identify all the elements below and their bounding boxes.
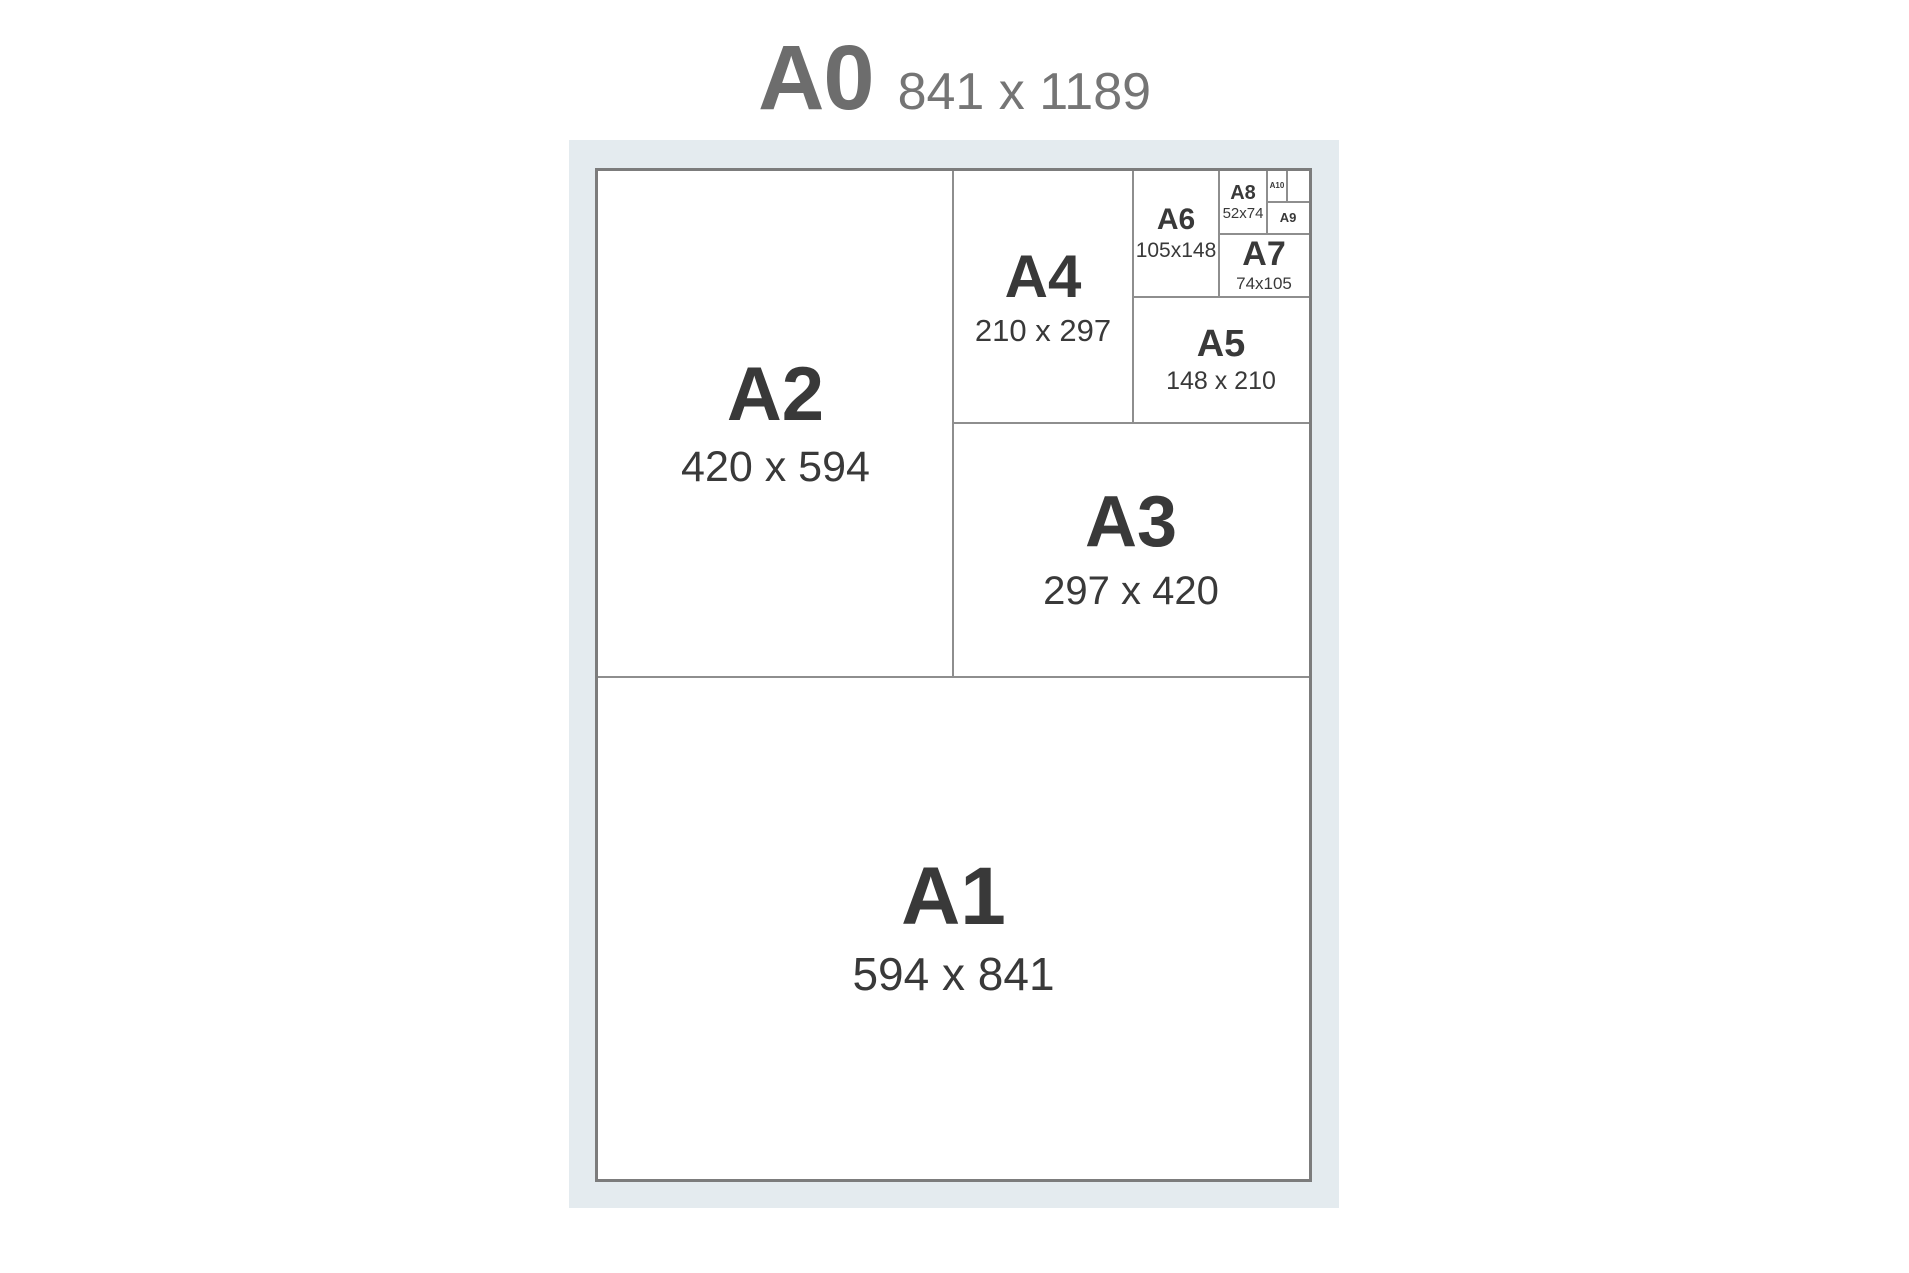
divider-a7-top: [1218, 233, 1309, 235]
panel-a5-label: A5: [1197, 325, 1246, 364]
panel-a10-label: A10: [1270, 182, 1285, 190]
sheet-a0: A2 420 x 594 A4 210 x 297 A6 105x148 A8 …: [595, 168, 1312, 1182]
panel-a7-label: A7: [1242, 237, 1285, 272]
panel-a2-dims: 420 x 594: [681, 443, 870, 492]
panel-a8: A8 52x74: [1219, 171, 1267, 234]
panel-a5-dims: 148 x 210: [1166, 367, 1276, 396]
divider-a2-a4: [952, 171, 954, 677]
panel-a3-label: A3: [1085, 486, 1177, 559]
title-size-name: A0: [758, 32, 874, 124]
panel-a9-label: A9: [1280, 211, 1297, 224]
panel-a7: A7 74x105: [1219, 234, 1309, 297]
title-size-dims: 841 x 1189: [898, 66, 1151, 118]
divider-a1-top: [598, 676, 1309, 678]
panel-a8-label: A8: [1230, 183, 1256, 203]
panel-a3: A3 297 x 420: [953, 423, 1309, 677]
panel-a4-dims: 210 x 297: [975, 313, 1111, 349]
panel-a6: A6 105x148: [1133, 171, 1219, 297]
panel-a6-label: A6: [1157, 205, 1195, 236]
panel-a10: A10: [1267, 171, 1287, 202]
panel-a8-dims: 52x74: [1223, 205, 1264, 222]
panel-a2: A2 420 x 594: [598, 171, 953, 677]
panel-a4-label: A4: [1005, 246, 1082, 307]
panel-a7-dims: 74x105: [1236, 274, 1292, 294]
divider-a3-top: [952, 422, 1309, 424]
divider-a5-top: [1132, 296, 1309, 298]
divider-a10-blank: [1286, 171, 1288, 202]
panel-a9: A9: [1267, 202, 1309, 234]
panel-a1: A1 594 x 841: [598, 677, 1309, 1179]
panel-a3-dims: 297 x 420: [1043, 568, 1219, 614]
panel-a1-dims: 594 x 841: [852, 948, 1054, 1001]
panel-a1-label: A1: [901, 855, 1006, 939]
panel-blank: [1287, 171, 1309, 202]
panel-a5: A5 148 x 210: [1133, 297, 1309, 423]
page-title: A0 841 x 1189: [0, 32, 1909, 124]
paper-sizes-diagram: A0 841 x 1189 A2 420 x 594 A4 210 x 297 …: [0, 0, 1909, 1273]
panel-a4: A4 210 x 297: [953, 171, 1133, 423]
panel-a2-label: A2: [727, 356, 824, 434]
panel-a6-dims: 105x148: [1136, 239, 1217, 263]
